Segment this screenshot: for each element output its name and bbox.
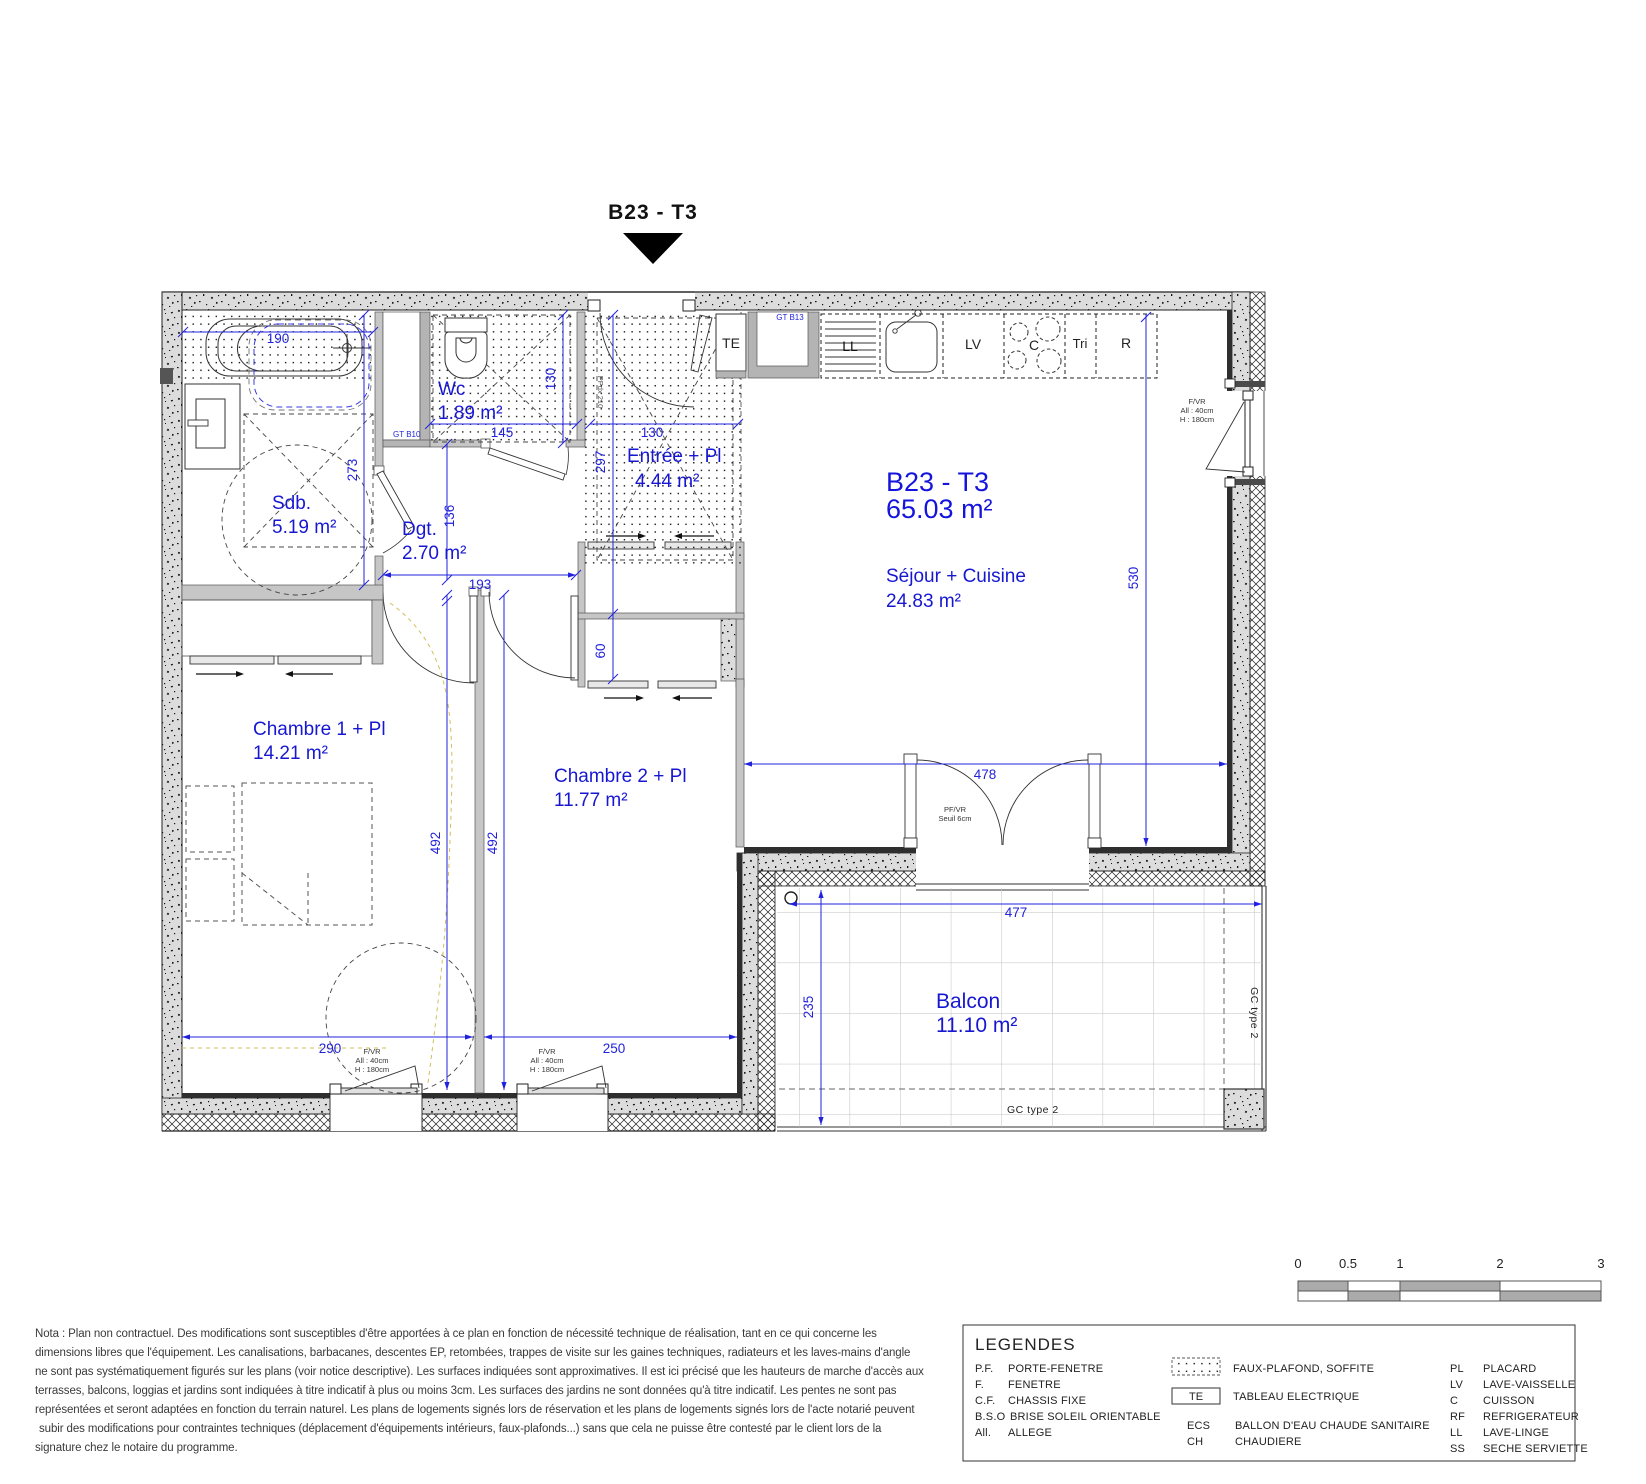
svg-text:Wc: Wc <box>438 379 465 400</box>
svg-text:ECS: ECS <box>1187 1420 1210 1432</box>
svg-text:Nota : Plan non contractuel. D: Nota : Plan non contractuel. Des modific… <box>35 1328 877 1340</box>
svg-text:CUISSON: CUISSON <box>1483 1395 1535 1407</box>
svg-text:PORTE-FENETRE: PORTE-FENETRE <box>1008 1363 1103 1375</box>
svg-text:5.19 m²: 5.19 m² <box>272 517 336 538</box>
svg-text:478: 478 <box>974 767 997 782</box>
svg-text:représentées et seront adaptée: représentées et seront adaptées en fonct… <box>35 1404 915 1416</box>
svg-text:F/VR: F/VR <box>363 1047 381 1056</box>
svg-text:60: 60 <box>593 643 608 658</box>
svg-text:C: C <box>1450 1395 1458 1407</box>
svg-text:H : 180cm: H : 180cm <box>1180 415 1214 424</box>
svg-text:ne sont pas systématiquement f: ne sont pas systématiquement figurés sur… <box>35 1366 924 1378</box>
svg-text:290: 290 <box>319 1041 342 1056</box>
svg-text:0.5: 0.5 <box>1339 1256 1357 1271</box>
svg-text:11.77 m²: 11.77 m² <box>554 790 628 811</box>
svg-text:F/VR: F/VR <box>1188 397 1206 406</box>
svg-text:477: 477 <box>1005 905 1028 920</box>
svg-text:GC type 2: GC type 2 <box>1248 987 1260 1039</box>
svg-text:PF/VR: PF/VR <box>944 805 967 814</box>
svg-text:TE: TE <box>1189 1391 1203 1403</box>
svg-text:LEGENDES: LEGENDES <box>975 1335 1076 1354</box>
svg-text:TABLEAU ELECTRIQUE: TABLEAU ELECTRIQUE <box>1233 1391 1359 1403</box>
svg-text:LV: LV <box>1450 1379 1464 1391</box>
svg-text:Tri: Tri <box>1073 336 1088 351</box>
svg-text:All : 40cm: All : 40cm <box>356 1056 389 1065</box>
svg-text:B23 - T3: B23 - T3 <box>608 201 698 224</box>
svg-text:dimensions libres que l'équipe: dimensions libres que l'équipement. Les … <box>35 1347 910 1359</box>
svg-text:ALLEGE: ALLEGE <box>1008 1427 1052 1439</box>
svg-text:P.F.: P.F. <box>975 1363 993 1375</box>
svg-text:297: 297 <box>593 451 608 474</box>
svg-text:CHAUDIERE: CHAUDIERE <box>1235 1436 1302 1448</box>
svg-text:C.F.: C.F. <box>975 1395 995 1407</box>
svg-text:PLACARD: PLACARD <box>1483 1363 1536 1375</box>
svg-text:PL: PL <box>1450 1363 1464 1375</box>
svg-text:F/VR: F/VR <box>538 1047 556 1056</box>
svg-text:3: 3 <box>1597 1256 1604 1271</box>
svg-text:SECHE SERVIETTE: SECHE SERVIETTE <box>1483 1443 1588 1455</box>
svg-text:193: 193 <box>469 577 492 592</box>
svg-text:0: 0 <box>1294 1256 1301 1271</box>
svg-text:FAUX-PLAFOND, SOFFITE: FAUX-PLAFOND, SOFFITE <box>1233 1363 1374 1375</box>
svg-text:LAVE-LINGE: LAVE-LINGE <box>1483 1427 1549 1439</box>
svg-text:signature chez le notaire du p: signature chez le notaire du programme. <box>35 1442 238 1454</box>
svg-text:130: 130 <box>543 368 558 391</box>
svg-text:C: C <box>1029 337 1039 353</box>
svg-text:Balcon: Balcon <box>936 990 1000 1013</box>
svg-text:Sdb.: Sdb. <box>272 493 311 514</box>
svg-text:All : 40cm: All : 40cm <box>531 1056 564 1065</box>
svg-text:250: 250 <box>603 1041 626 1056</box>
svg-text:All.: All. <box>975 1427 991 1439</box>
svg-text:190: 190 <box>267 331 290 346</box>
svg-text:B.S.O: B.S.O <box>975 1411 1006 1423</box>
svg-text:R: R <box>1121 335 1131 351</box>
svg-text:BALLON D'EAU CHAUDE SANITAIRE: BALLON D'EAU CHAUDE SANITAIRE <box>1235 1420 1430 1432</box>
svg-text:Entrée + Pl: Entrée + Pl <box>627 446 722 467</box>
svg-text:Chambre 2 + Pl: Chambre 2 + Pl <box>554 766 687 787</box>
svg-text:REFRIGERATEUR: REFRIGERATEUR <box>1483 1411 1579 1423</box>
svg-text:Chambre 1 + Pl: Chambre 1 + Pl <box>253 719 386 740</box>
svg-text:492: 492 <box>485 832 500 855</box>
svg-text:235: 235 <box>801 996 816 1019</box>
svg-text:Séjour + Cuisine: Séjour + Cuisine <box>886 566 1026 587</box>
svg-text:BRISE SOLEIL ORIENTABLE: BRISE SOLEIL ORIENTABLE <box>1010 1411 1161 1423</box>
svg-text:FENETRE: FENETRE <box>1008 1379 1061 1391</box>
svg-text:492: 492 <box>428 832 443 855</box>
svg-text:24.83 m²: 24.83 m² <box>886 591 961 612</box>
svg-text:SS: SS <box>1450 1443 1465 1455</box>
svg-text:subir des modifications pour c: subir des modifications pour contraintes… <box>39 1423 882 1435</box>
svg-text:LL: LL <box>1450 1427 1463 1439</box>
svg-text:136: 136 <box>442 505 457 528</box>
svg-text:H : 180cm: H : 180cm <box>530 1065 564 1074</box>
svg-text:B23 - T3: B23 - T3 <box>886 467 989 497</box>
svg-text:terrasses, balcons, loggias et: terrasses, balcons, loggias et jardins s… <box>35 1385 897 1397</box>
svg-text:2.70 m²: 2.70 m² <box>402 543 466 564</box>
svg-text:GC type 2: GC type 2 <box>1007 1104 1059 1116</box>
svg-text:1.89 m²: 1.89 m² <box>438 403 502 424</box>
svg-text:2: 2 <box>1496 1256 1503 1271</box>
svg-text:130: 130 <box>641 425 664 440</box>
svg-text:14.21 m²: 14.21 m² <box>253 743 328 764</box>
svg-text:H : 180cm: H : 180cm <box>355 1065 389 1074</box>
svg-text:RF: RF <box>1450 1411 1465 1423</box>
svg-text:65.03 m²: 65.03 m² <box>886 494 993 524</box>
svg-text:273: 273 <box>345 459 360 482</box>
svg-text:LV: LV <box>965 336 982 352</box>
svg-text:CH: CH <box>1187 1436 1203 1448</box>
svg-text:1: 1 <box>1396 1256 1403 1271</box>
svg-text:All : 40cm: All : 40cm <box>1181 406 1214 415</box>
svg-text:F.: F. <box>975 1379 984 1391</box>
svg-text:LL: LL <box>842 338 858 354</box>
svg-text:530: 530 <box>1126 567 1141 590</box>
svg-text:PPdx 210: PPdx 210 <box>596 376 605 409</box>
svg-text:11.10 m²: 11.10 m² <box>936 1014 1017 1037</box>
svg-text:TE: TE <box>722 335 740 351</box>
svg-text:LAVE-VAISSELLE: LAVE-VAISSELLE <box>1483 1379 1575 1391</box>
svg-text:4.44 m²: 4.44 m² <box>635 471 699 492</box>
svg-text:Seuil 6cm: Seuil 6cm <box>939 814 972 823</box>
svg-text:145: 145 <box>491 425 514 440</box>
svg-text:Dgt.: Dgt. <box>402 519 437 540</box>
svg-text:GT B10: GT B10 <box>393 430 421 439</box>
svg-text:CHASSIS FIXE: CHASSIS FIXE <box>1008 1395 1086 1407</box>
svg-text:GT B13: GT B13 <box>776 313 804 322</box>
